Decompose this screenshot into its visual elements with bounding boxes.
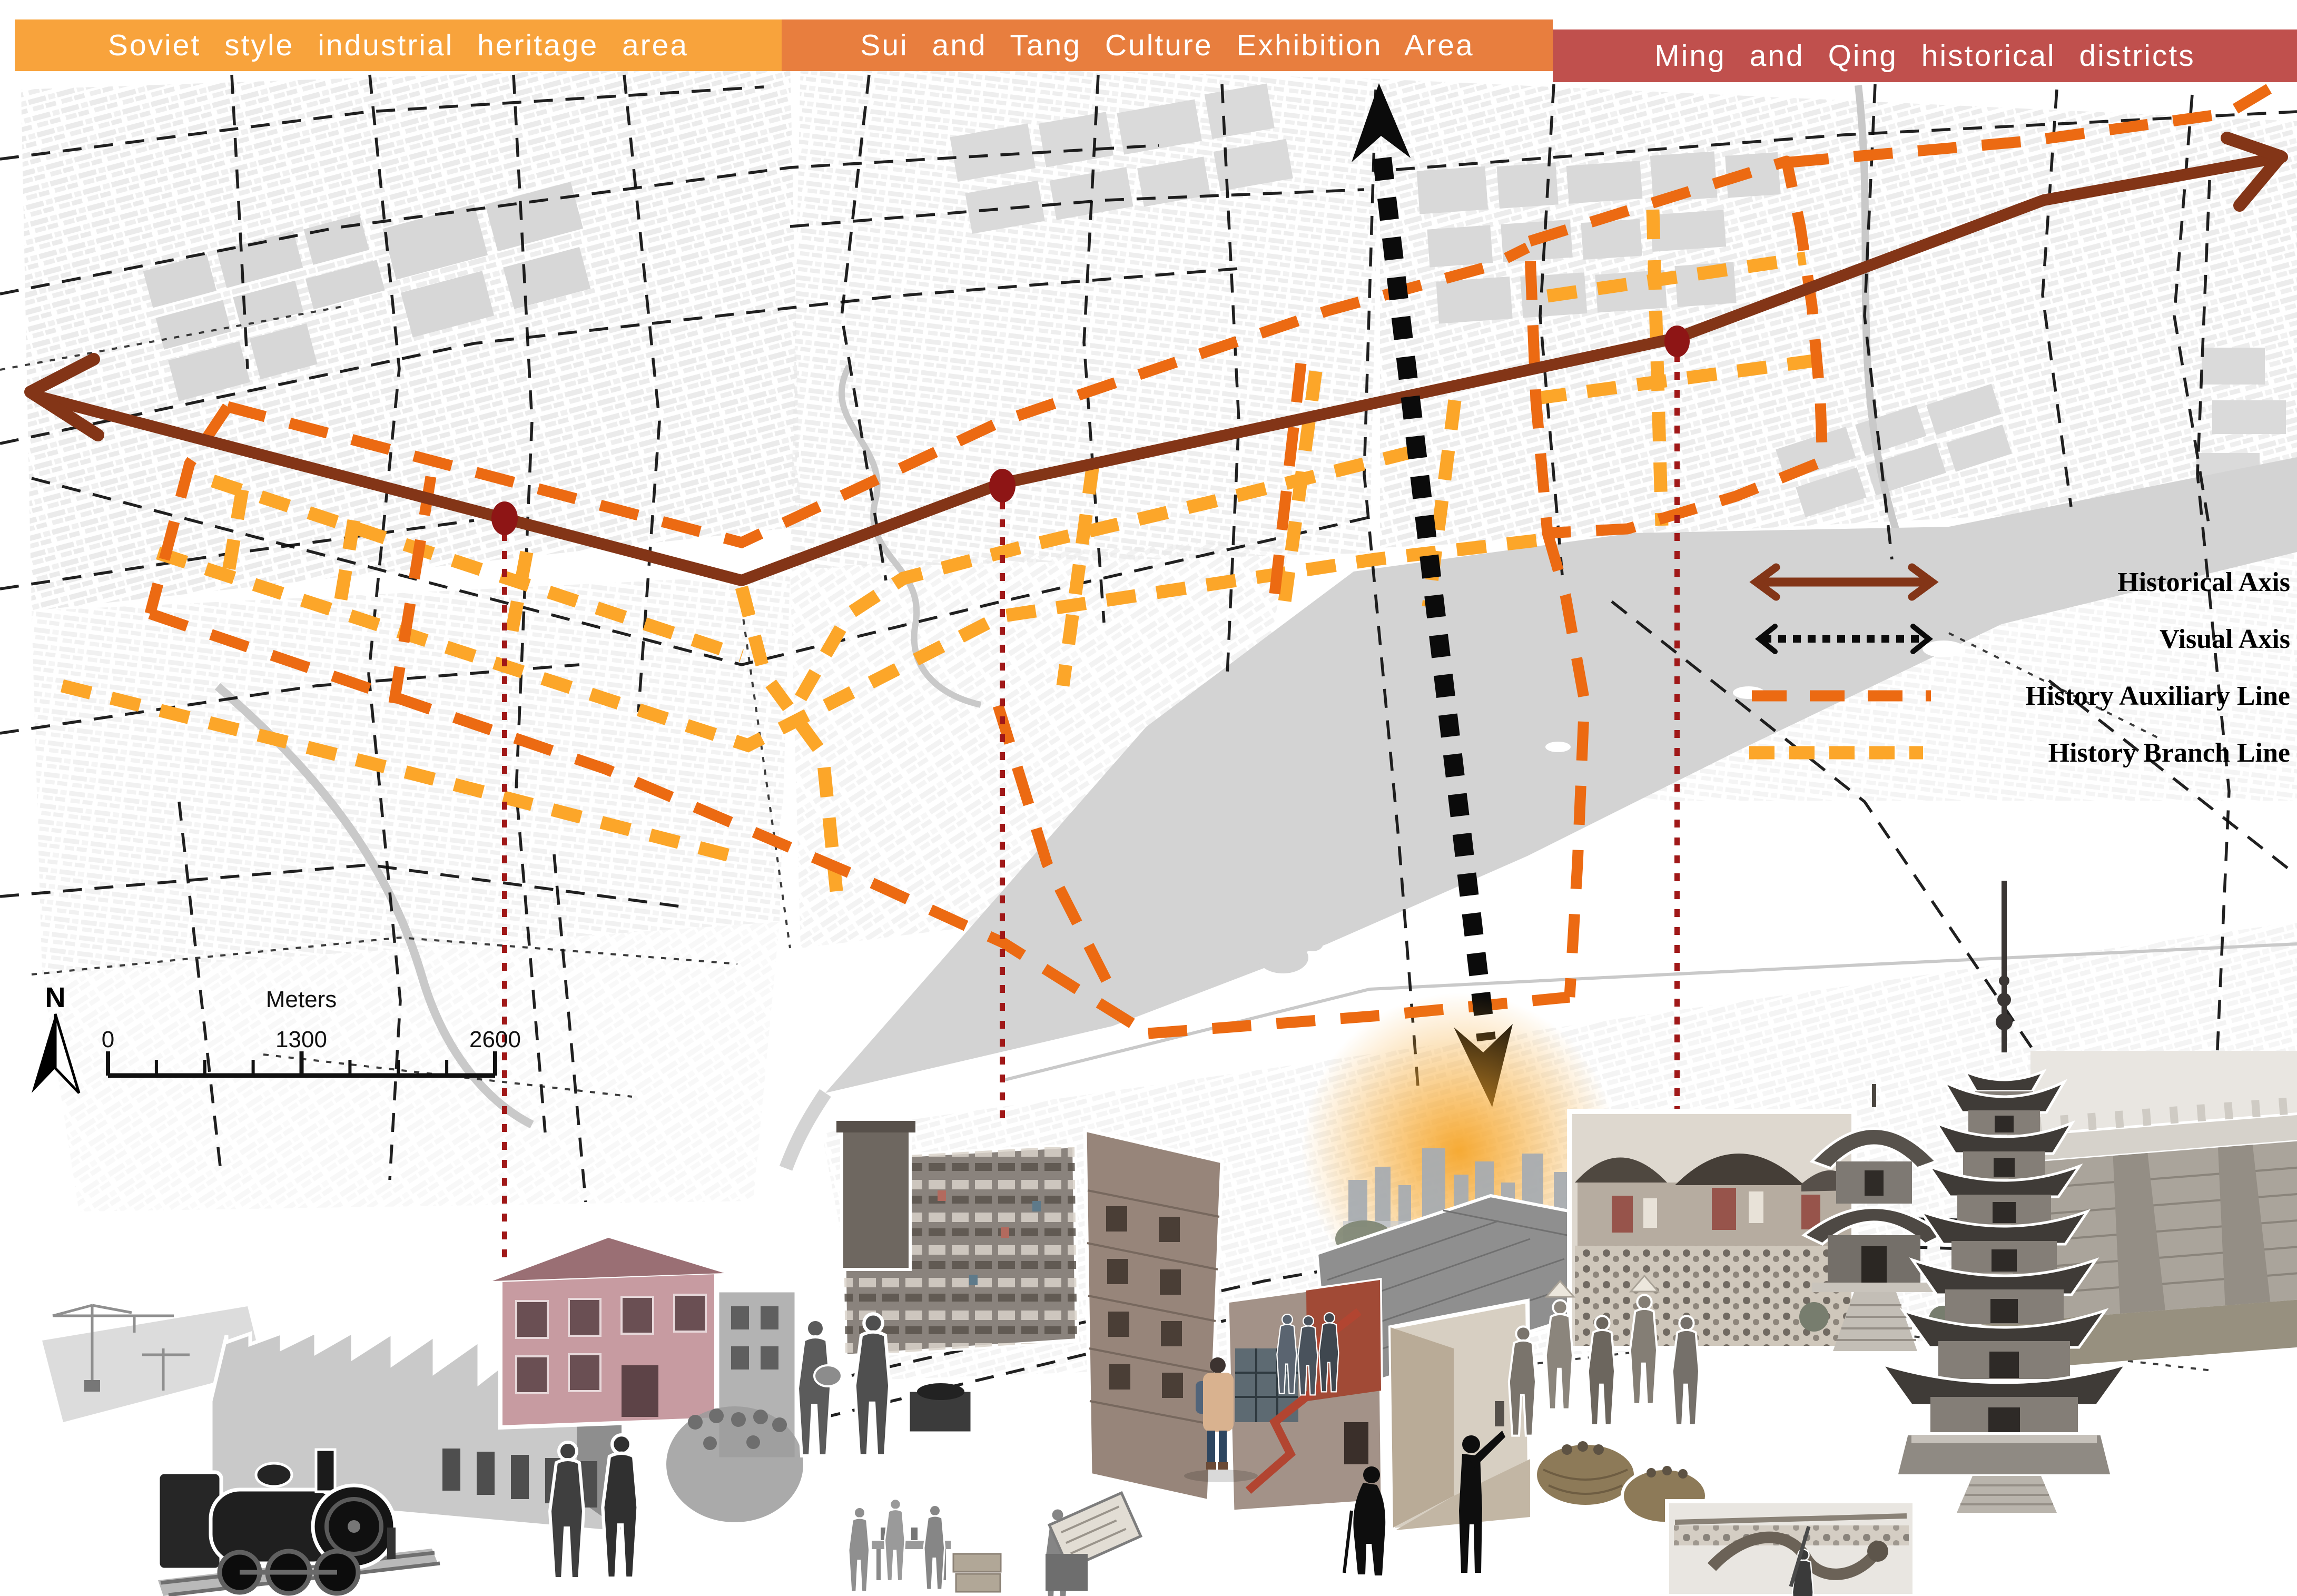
legend-row-historical-axis: Historical Axis (1736, 559, 2290, 605)
pink-house (492, 1238, 724, 1427)
zone-bar-ming-qing: Ming and Qing historical districts (1553, 29, 2297, 82)
woman-cooking (855, 1314, 890, 1455)
svg-text:0: 0 (102, 1027, 114, 1052)
pond (1258, 942, 1308, 973)
svg-text:N: N (45, 982, 66, 1013)
legend-label: Historical Axis (1952, 567, 2290, 598)
zone-label-soviet: Soviet style industrial heritage area (108, 28, 688, 63)
worker-silhouette (603, 1435, 638, 1578)
legend-label: Visual Axis (1952, 624, 2290, 655)
svg-text:Meters: Meters (266, 987, 337, 1012)
svg-text:1300: 1300 (275, 1027, 327, 1052)
legend: Historical Axis Visual Axis History Auxi… (1736, 559, 2290, 787)
urban-axis-analysis-poster: N Meters 0 1300 2600 (0, 0, 2297, 1596)
legend-row-history-branch: History Branch Line (1736, 730, 2290, 775)
axis-node-mingqing (1664, 326, 1690, 357)
zone-label-ming-qing: Ming and Qing historical districts (1654, 38, 2195, 73)
historical-axis-symbol (1736, 563, 1952, 601)
axis-node-soviet (491, 501, 518, 535)
legend-label: History Branch Line (1952, 737, 2290, 769)
legend-label: History Auxiliary Line (1952, 681, 2290, 712)
axis-node-suitang (989, 469, 1016, 503)
svg-text:2600: 2600 (469, 1027, 521, 1052)
soviet-industrial-collage (42, 1238, 803, 1596)
zone-bar-sui-tang: Sui and Tang Culture Exhibition Area (782, 19, 1553, 71)
drafting-person (1045, 1493, 1141, 1596)
history-auxiliary-symbol (1736, 677, 1952, 715)
legend-row-history-auxiliary: History Auxiliary Line (1736, 673, 2290, 718)
zone-label-sui-tang: Sui and Tang Culture Exhibition Area (860, 28, 1474, 63)
worker-silhouette (550, 1442, 584, 1579)
children-at-table (849, 1499, 1001, 1592)
city-map: N Meters 0 1300 2600 (0, 0, 2297, 1596)
crowd-photo (666, 1406, 803, 1522)
woman-with-baby (797, 1319, 831, 1456)
zone-bar-soviet: Soviet style industrial heritage area (15, 19, 782, 71)
visual-axis-symbol (1736, 620, 1952, 658)
brick-tower (1085, 1130, 1222, 1501)
legend-row-visual-axis: Visual Axis (1736, 616, 2290, 662)
dragon-dance-photo (1667, 1501, 1915, 1596)
history-branch-symbol (1736, 734, 1952, 772)
